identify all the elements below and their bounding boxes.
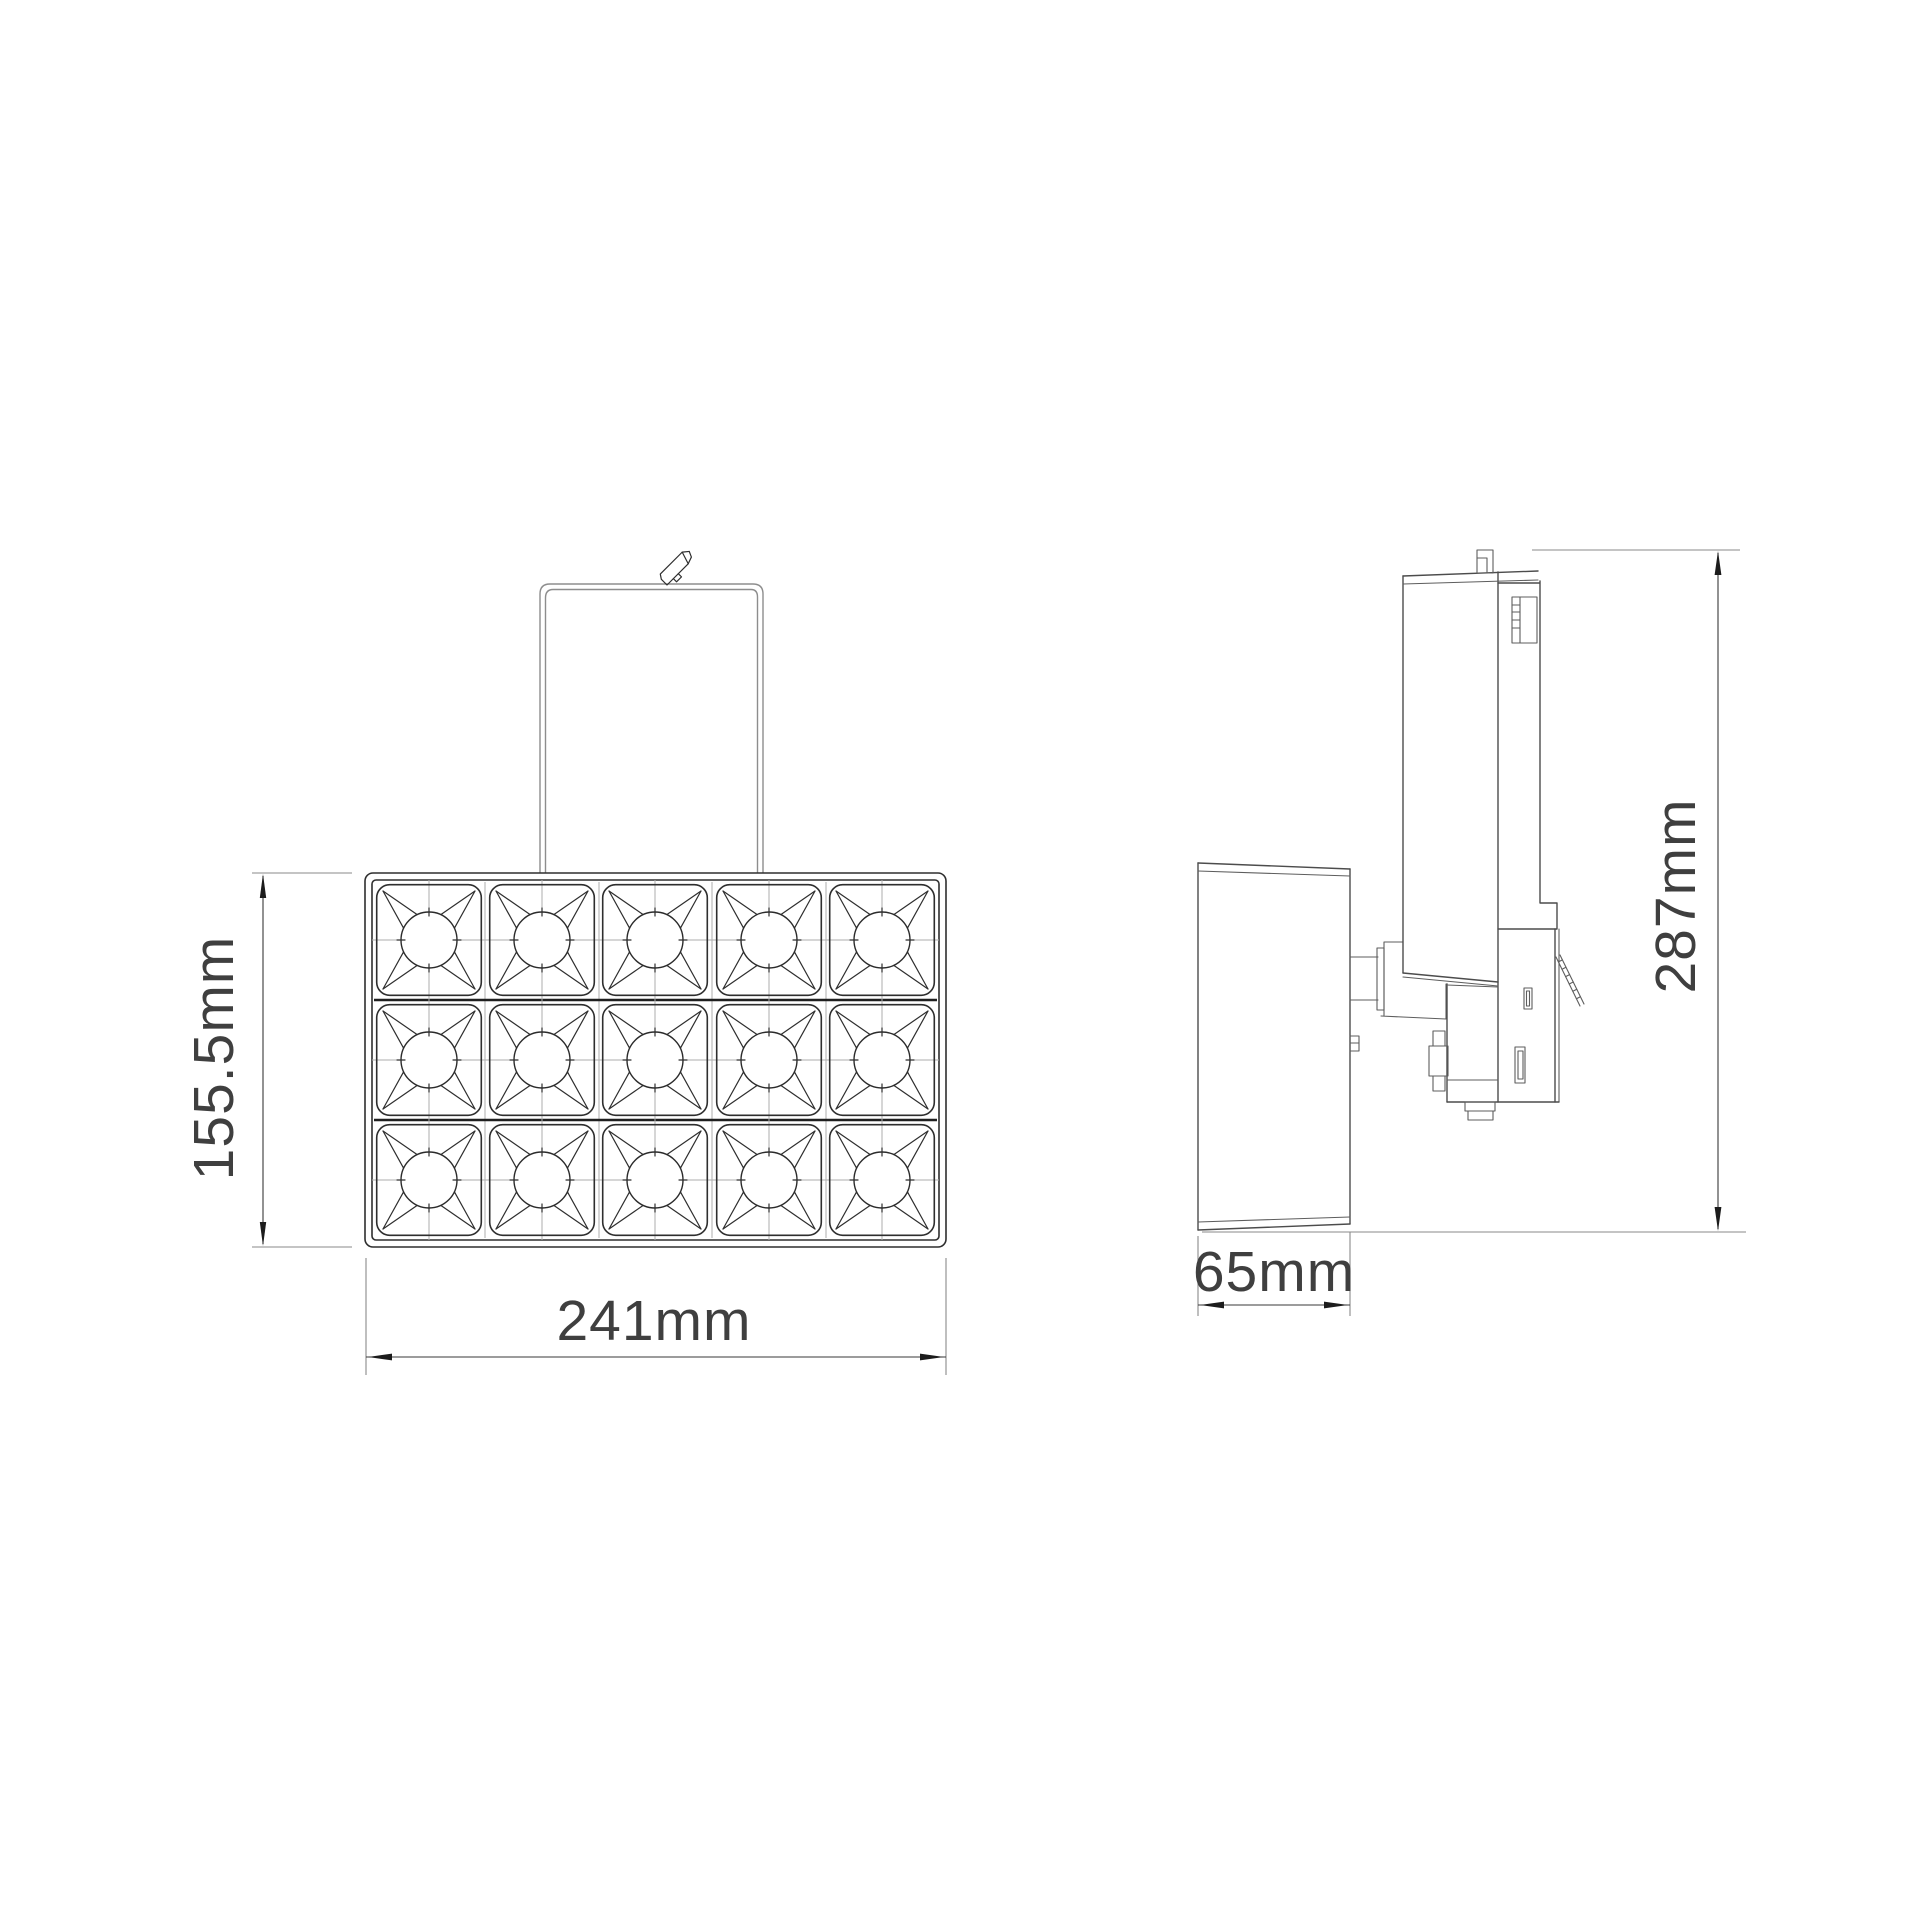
technical-drawing-page: 155.5mm 241mm — [0, 0, 1920, 1920]
led-cell — [485, 1120, 599, 1240]
side-depth-dimension: 65mm — [1193, 1232, 1355, 1316]
led-cell — [598, 880, 712, 1000]
front-height-dimension: 155.5mm — [182, 873, 352, 1247]
vent-slots — [1515, 988, 1532, 1083]
led-cell — [598, 1120, 712, 1240]
front-width-label: 241mm — [556, 1289, 751, 1353]
side-height-dimension: 287mm — [1202, 550, 1746, 1232]
contact-block — [1512, 597, 1537, 643]
led-cell — [372, 1120, 486, 1240]
led-cell — [485, 1000, 599, 1120]
side-height-label: 287mm — [1644, 798, 1708, 993]
front-height-label: 155.5mm — [182, 936, 246, 1181]
led-cell — [372, 1000, 486, 1120]
adjustment-knob — [1429, 1031, 1448, 1091]
led-cell — [825, 880, 939, 1000]
led-cell — [825, 1000, 939, 1120]
led-cell — [485, 880, 599, 1000]
front-view: 155.5mm 241mm — [182, 548, 946, 1375]
led-cell — [598, 1000, 712, 1120]
track-adapter-side — [1403, 550, 1557, 1102]
lamp-head-side — [1198, 863, 1359, 1230]
led-cell — [712, 1120, 826, 1240]
led-panel — [365, 873, 946, 1247]
bottom-tab — [1465, 1102, 1495, 1120]
track-light-dimension-drawing: 155.5mm 241mm — [0, 0, 1920, 1920]
side-depth-label: 65mm — [1193, 1240, 1355, 1304]
yoke-bracket — [1350, 942, 1446, 1019]
spring-lever — [1556, 955, 1584, 1006]
release-lever-icon — [658, 548, 698, 588]
driver-housing — [1429, 929, 1584, 1120]
led-cell — [712, 1000, 826, 1120]
led-cell — [712, 880, 826, 1000]
led-cell — [372, 880, 486, 1000]
mounting-hook — [1477, 550, 1493, 573]
side-view: 65mm 287mm — [1193, 550, 1746, 1316]
front-width-dimension: 241mm — [366, 1258, 946, 1375]
led-cell — [825, 1120, 939, 1240]
track-adapter-front — [540, 584, 763, 873]
